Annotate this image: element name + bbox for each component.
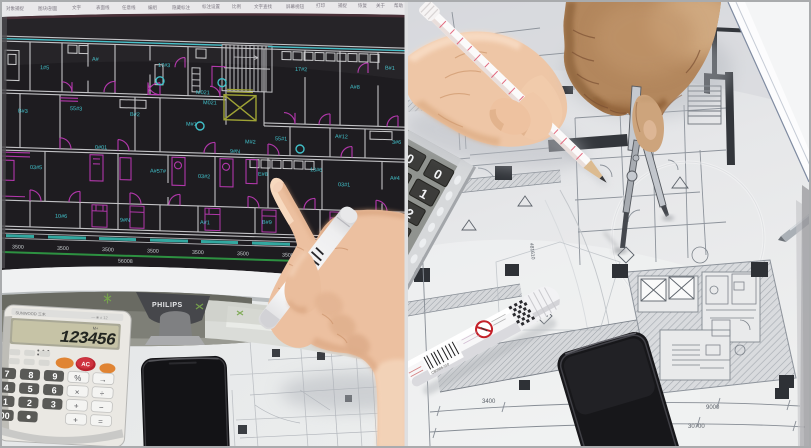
svg-text:恢复: 恢复	[358, 2, 367, 9]
svg-text:M#1: M#1	[186, 122, 197, 128]
svg-text:B#9: B#9	[262, 220, 272, 226]
svg-text:55#1: 55#1	[275, 136, 287, 142]
svg-text:10#6: 10#6	[55, 214, 67, 220]
svg-text:M#2: M#2	[245, 139, 256, 145]
svg-text:9: 9	[52, 371, 58, 381]
svg-text:A#4: A#4	[390, 176, 400, 182]
svg-text:9#N: 9#N	[230, 149, 240, 155]
svg-text:3500: 3500	[237, 251, 249, 257]
svg-text:3#6: 3#6	[392, 140, 401, 146]
svg-text:→: →	[99, 375, 107, 384]
svg-text:3500: 3500	[57, 246, 69, 252]
svg-text:图块/剖面: 图块/剖面	[38, 5, 58, 12]
svg-text:56008: 56008	[118, 259, 133, 265]
svg-text:打印: 打印	[316, 2, 325, 9]
svg-text:55#3: 55#3	[70, 106, 82, 112]
svg-text:13#6: 13#6	[310, 167, 322, 173]
svg-text:17#3: 17#3	[158, 63, 170, 69]
svg-text:B#2: B#2	[130, 112, 140, 118]
svg-text:文字查找: 文字查找	[254, 3, 272, 10]
svg-text:B#3: B#3	[18, 109, 28, 115]
svg-text:7: 7	[4, 369, 10, 379]
svg-text:A#57#: A#57#	[150, 169, 167, 176]
svg-text:捕捉: 捕捉	[338, 2, 347, 9]
svg-text:3: 3	[51, 399, 57, 409]
svg-text:AC: AC	[81, 362, 91, 369]
svg-text:3500: 3500	[192, 250, 204, 256]
svg-text:M021: M021	[203, 100, 217, 106]
svg-text:任意线: 任意线	[122, 4, 136, 11]
svg-text:0#01: 0#01	[95, 145, 107, 151]
svg-text:— ■ ± 12: — ■ ± 12	[91, 314, 108, 320]
svg-text:5: 5	[27, 384, 33, 394]
svg-text:123456: 123456	[59, 329, 116, 351]
svg-text:8: 8	[28, 370, 34, 380]
svg-text:对象捕捉: 对象捕捉	[6, 5, 24, 12]
svg-text:关于: 关于	[376, 2, 385, 9]
svg-text:1#5: 1#5	[40, 65, 49, 71]
svg-text:3500: 3500	[12, 244, 24, 250]
svg-text:03#5: 03#5	[30, 165, 42, 171]
svg-text:+: +	[73, 416, 78, 425]
svg-text:03#2: 03#2	[198, 174, 210, 180]
svg-text:×: ×	[74, 388, 79, 397]
svg-text:2: 2	[27, 398, 33, 408]
svg-text:6: 6	[51, 385, 57, 395]
svg-text:+: +	[74, 402, 79, 411]
svg-text:−: −	[99, 403, 104, 412]
svg-text:3500: 3500	[147, 248, 159, 254]
svg-text:3500: 3500	[102, 247, 114, 253]
svg-text:隐藏标注: 隐藏标注	[172, 4, 190, 11]
svg-text:9#N: 9#N	[120, 218, 130, 224]
svg-text:PHILIPS: PHILIPS	[152, 302, 183, 309]
svg-text:9000: 9000	[706, 405, 720, 411]
svg-text:A#1: A#1	[200, 220, 210, 226]
svg-text:%: %	[74, 374, 82, 383]
svg-text:A#8: A#8	[350, 85, 360, 91]
svg-text:帮助: 帮助	[394, 2, 403, 9]
svg-text:屏幕视钮: 屏幕视钮	[286, 3, 304, 10]
svg-text:M+: M+	[93, 325, 100, 330]
svg-text:文字: 文字	[72, 4, 81, 11]
svg-text:30700: 30700	[688, 424, 705, 430]
svg-text:3400: 3400	[482, 399, 496, 405]
svg-text:标注设置: 标注设置	[202, 3, 220, 10]
svg-text:E#8: E#8	[258, 172, 268, 178]
svg-text:03#1: 03#1	[338, 182, 350, 188]
svg-text:比例: 比例	[232, 3, 241, 10]
svg-text:4: 4	[3, 383, 9, 393]
svg-text:表面线: 表面线	[96, 4, 110, 11]
svg-text:A#12: A#12	[335, 134, 348, 140]
svg-text:=: =	[98, 417, 103, 426]
svg-text:1: 1	[3, 397, 9, 407]
svg-text:编组: 编组	[148, 4, 157, 11]
svg-text:M021: M021	[196, 90, 210, 96]
